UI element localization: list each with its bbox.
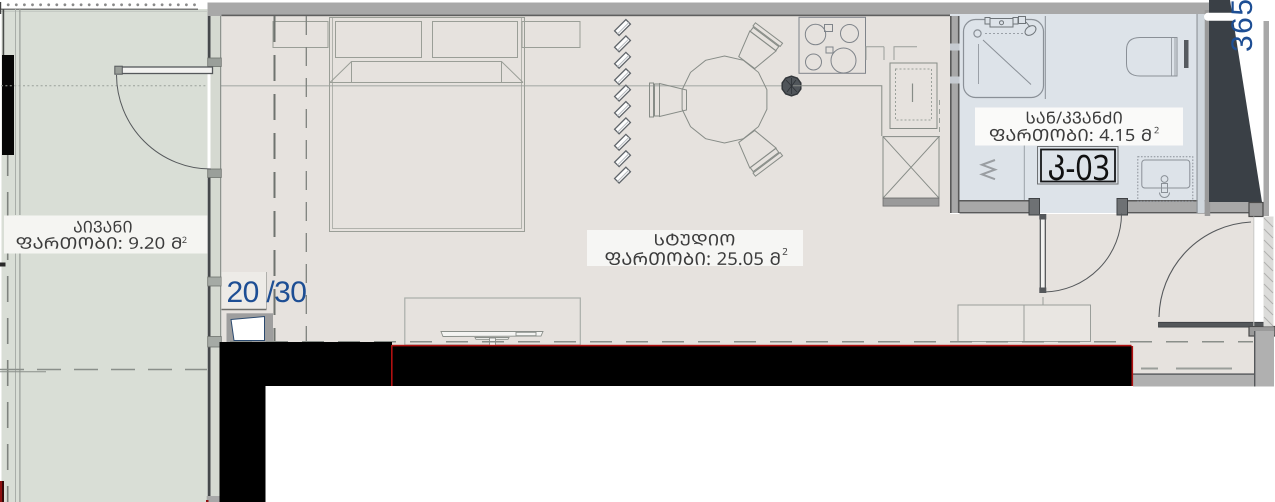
svg-text:20 /30: 20 /30 bbox=[227, 276, 307, 309]
svg-text:365: 365 bbox=[1226, 0, 1259, 52]
